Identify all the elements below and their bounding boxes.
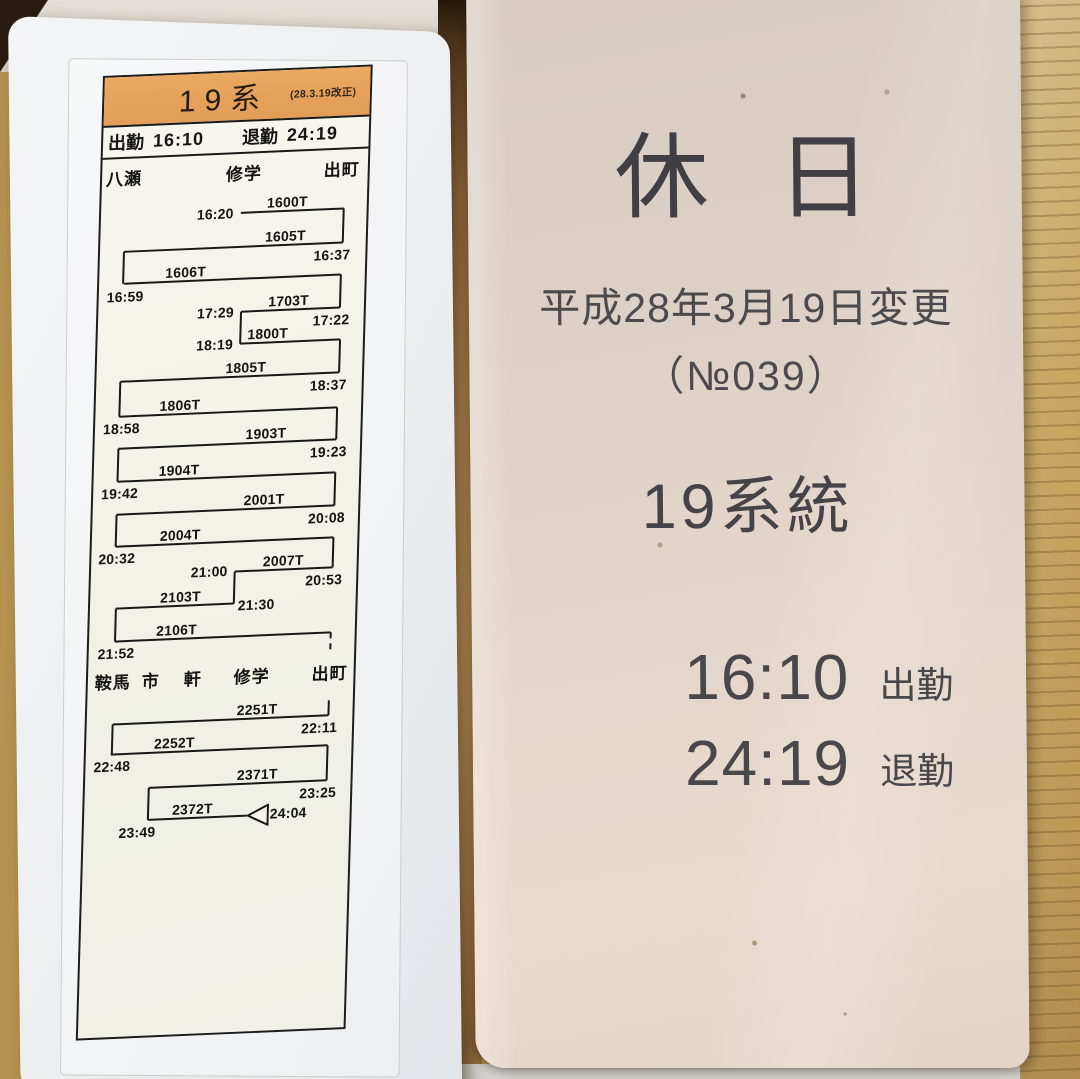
run-label: 2371T [237,765,278,783]
run-label: 1800T [247,325,288,343]
run-label: 2001T [243,491,284,509]
time-label: 16:37 [313,246,350,264]
time-label: 16:20 [197,205,234,223]
time-label: 21:52 [97,645,134,663]
run-line [116,536,334,547]
run-label: 1600T [267,193,308,211]
run-line [117,471,335,482]
route-number-title: 19系統 [470,456,1025,547]
run-line [115,631,331,642]
time-label: 21:00 [191,563,228,581]
time-label: 17:22 [312,311,349,329]
run-line [113,714,329,725]
run-label: 1606T [165,263,206,281]
run-label: 1805T [225,359,266,377]
run-connector [342,208,345,242]
run-label: 2007T [263,552,304,570]
time-label: 24:04 [270,804,307,822]
run-connector [332,537,335,567]
time-label: 18:19 [196,336,233,354]
timetable-diagram: 八瀬修学出町鞍馬市軒修学出町1600T16:201605T16:371606T1… [78,67,371,1039]
run-label: 2103T [160,588,201,606]
day-type-title: 休 日 [467,102,1022,238]
time-label: 20:08 [308,509,345,527]
run-line [111,744,328,755]
run-connector [147,788,150,820]
run-label: 2252T [154,734,195,752]
station-label: 鞍馬 [95,668,132,695]
duty-end-label: 退勤 [880,741,954,795]
station-label: 出町 [324,155,361,182]
time-label: 20:53 [305,571,342,589]
duty-end-row: 24:19 退勤 [685,726,955,800]
run-connector [114,609,117,642]
station-label: 市 [141,667,160,693]
run-label: 1903T [245,425,286,443]
time-label: 16:59 [107,288,144,306]
run-label: 2372T [172,800,213,818]
time-label: 19:42 [101,485,138,503]
station-label: 修学 [226,159,263,186]
run-label: 2004T [160,526,201,544]
time-label: 18:58 [103,420,140,438]
station-label: 修学 [233,662,270,689]
duty-start-time: 16:10 [684,640,850,714]
run-connector [122,252,125,284]
timetable-paper: 19系 (28.3.19改正) 出勤 16:10 退勤 24:19 八瀬修学出町… [76,64,373,1040]
run-label: 1703T [268,292,309,310]
time-label: 22:48 [93,758,130,776]
run-label: 1605T [265,227,306,245]
time-label: 22:11 [301,719,337,737]
time-label: 19:23 [310,443,347,461]
run-label: 2106T [156,621,197,639]
duty-start-row: 16:10 出勤 [684,640,954,714]
duty-start-label: 出勤 [879,655,953,709]
time-label: 23:49 [118,824,155,842]
run-connector [115,515,118,547]
run-line [119,406,337,417]
run-connector [327,700,329,715]
photo-scene: 19系 (28.3.19改正) 出勤 16:10 退勤 24:19 八瀬修学出町… [0,0,1080,1079]
revision-date: 平成28年3月19日変更 [469,274,1024,334]
run-connector [116,449,119,482]
run-label: 1904T [158,461,199,479]
run-connector [335,407,338,439]
time-label: 20:32 [98,550,135,568]
run-line [117,504,335,515]
run-connector [338,339,341,372]
time-label: 18:37 [310,376,347,394]
time-label: 17:29 [197,304,234,322]
time-label: 23:25 [299,784,336,802]
run-connector [339,274,342,307]
run-connector [326,745,329,780]
run-label: 2251T [237,700,278,718]
run-line [118,438,336,449]
run-connector [118,382,121,417]
card-number: （№039） [469,342,1024,402]
run-line [124,241,343,252]
duty-cover-card: 休 日 平成28年3月19日変更 （№039） 19系統 16:10 出勤 24… [466,0,1030,1068]
station-label: 出町 [311,659,348,686]
run-line [124,273,341,284]
terminus-arrow-icon [246,804,269,827]
time-label: 21:30 [238,596,275,614]
run-connector [329,632,331,649]
station-label: 八瀬 [106,164,143,191]
run-label: 1806T [159,396,200,414]
duty-end-time: 24:19 [685,726,851,800]
run-connector [333,472,336,505]
station-label: 軒 [183,665,202,691]
run-connector [111,724,114,754]
run-connector [239,312,242,344]
run-connector [233,572,236,604]
